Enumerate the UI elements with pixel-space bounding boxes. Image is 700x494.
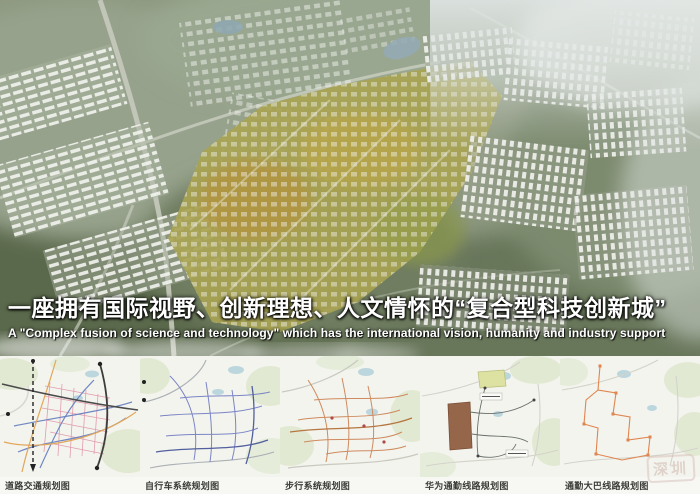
map-art-huawei-commute (420, 356, 560, 477)
map-panel-road-traffic: 道路交通规划图 (0, 356, 140, 494)
map-art-bicycle (140, 356, 280, 477)
map-caption-huawei-commute: 华为通勤线路规划图 (420, 477, 560, 492)
map-caption-road-traffic: 道路交通规划图 (0, 477, 140, 492)
watermark-shenzhen: 深圳 (646, 454, 695, 483)
map-art-road-traffic (0, 356, 140, 477)
aerial-render: 一座拥有国际视野、创新理想、人文情怀的“复合型科技创新城” A "Complex… (0, 0, 700, 356)
map-panel-huawei-commute: 华为通勤线路规划图 (420, 356, 560, 494)
map-panel-pedestrian: 步行系统规划图 (280, 356, 420, 494)
map-caption-pedestrian: 步行系统规划图 (280, 477, 420, 492)
map-art-pedestrian (280, 356, 420, 477)
planning-maps-strip: 道路交通规划图 (0, 356, 700, 494)
map-panel-bicycle: 自行车系统规划图 (140, 356, 280, 494)
map-caption-bicycle: 自行车系统规划图 (140, 477, 280, 492)
aerial-art (0, 0, 700, 356)
presentation-board: 一座拥有国际视野、创新理想、人文情怀的“复合型科技创新城” A "Complex… (0, 0, 700, 494)
